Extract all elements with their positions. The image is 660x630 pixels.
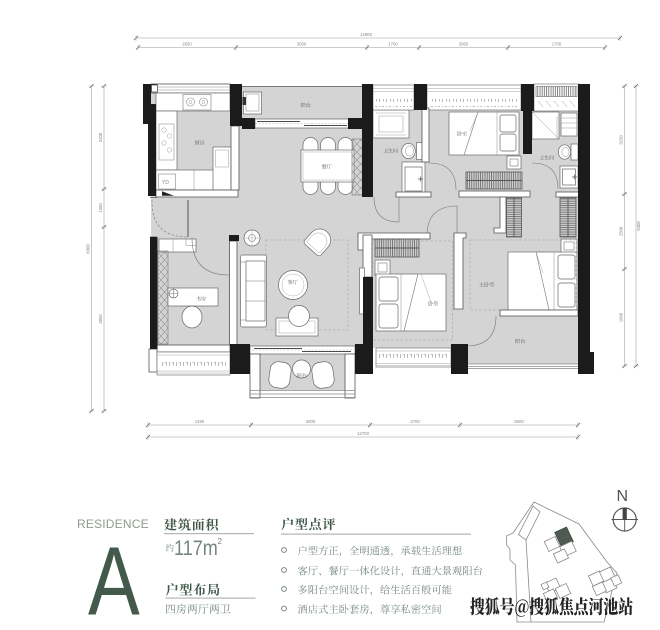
svg-text:5600: 5600 bbox=[514, 419, 524, 424]
svg-text:3850: 3850 bbox=[98, 314, 103, 324]
svg-text:A: A bbox=[88, 526, 140, 625]
svg-text:1490: 1490 bbox=[195, 419, 205, 424]
svg-text:3100: 3100 bbox=[98, 132, 103, 142]
svg-text:12900: 12900 bbox=[360, 32, 373, 37]
svg-text:1350: 1350 bbox=[98, 203, 103, 213]
svg-text:2700: 2700 bbox=[410, 419, 420, 424]
svg-text:3000: 3000 bbox=[297, 42, 307, 47]
svg-text:1700: 1700 bbox=[388, 42, 398, 47]
svg-text:2: 2 bbox=[218, 537, 223, 546]
svg-text:1600: 1600 bbox=[619, 312, 624, 322]
svg-text:4000: 4000 bbox=[306, 419, 316, 424]
svg-text:2500: 2500 bbox=[619, 226, 624, 236]
svg-text:N: N bbox=[617, 488, 629, 505]
svg-text:12700: 12700 bbox=[357, 431, 370, 436]
svg-text:2950: 2950 bbox=[459, 42, 469, 47]
svg-text:8300: 8300 bbox=[86, 244, 91, 254]
svg-text:2650: 2650 bbox=[182, 42, 192, 47]
svg-text:117m: 117m bbox=[174, 537, 218, 561]
svg-text:3150: 3150 bbox=[619, 135, 624, 145]
svg-text:1700: 1700 bbox=[552, 42, 562, 47]
svg-text:6300: 6300 bbox=[636, 221, 641, 231]
svg-text:YD: YD bbox=[162, 180, 169, 186]
